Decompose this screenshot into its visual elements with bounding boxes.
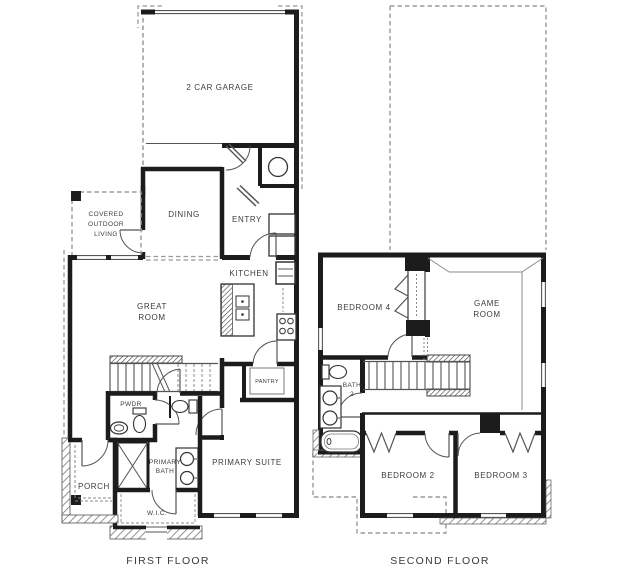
pwdr-toilet-tank [133,408,146,414]
game-room-area [428,258,543,410]
tub-drain [327,439,331,445]
porch-column [71,495,81,505]
vanity-sink [323,411,337,425]
svg-text:OUTDOOR: OUTDOOR [88,221,124,228]
room-label-entry: ENTRY [232,215,262,224]
bifold-doors [395,275,408,318]
svg-text:2: 2 [350,391,354,398]
entry-cabinet [269,214,295,234]
stove [277,314,296,340]
stone-veneer [546,480,551,518]
bath-toilet [172,401,188,413]
bifold-doors [505,433,535,452]
porch-door-arc [82,440,108,466]
stairs-first-floor [110,356,218,392]
bedroom3-door-arc [458,433,480,456]
porch-wall-hatch [62,438,70,523]
bifold-doors [366,433,396,452]
room-label-covered-outdoor-living: COVERED [89,211,124,218]
vaulted-ceiling-lines [428,258,543,410]
room-label-bath2: BATH [343,382,361,389]
stone-veneer [440,518,546,524]
garage-below-outline [390,6,546,250]
closet-angled-door [237,186,259,207]
stair-rail-hatch [110,356,182,363]
primary-bath-area [117,396,200,516]
bath2-toilet-tank [322,365,329,379]
porch-wall-hatch [62,515,118,523]
room-label-bedroom4: BEDROOM 4 [337,303,390,312]
floorplan-page: 2 CAR GARAGE COVERED OUTDOOR LIVING DINI… [0,0,617,582]
bath2-toilet [330,366,347,379]
entry-area [222,144,297,258]
vanity-sink [181,472,194,485]
pwdr-toilet [134,416,146,433]
second-floor-plan: BEDROOM 4 GAME ROOM BATH 2 BEDROOM 2 BED… [313,6,551,567]
room-label-primary-suite: PRIMARY SUITE [212,458,282,467]
stair-break-line [152,363,170,392]
first-floor-title: FIRST FLOOR [126,555,210,567]
oven-cabinet [276,262,295,284]
floorplan-canvas: 2 CAR GARAGE COVERED OUTDOOR LIVING DINI… [0,0,617,582]
porch-area [62,438,118,523]
patio-column [71,191,81,201]
room-label-great-room: GREAT [137,302,167,311]
room-label-kitchen: KITCHEN [229,269,268,278]
entry-cabinet [269,236,295,256]
svg-text:ROOM: ROOM [473,310,500,319]
water-heater [269,158,288,177]
room-label-pantry: PANTRY [255,379,279,385]
hall-pwdr-walls [108,358,224,442]
vanity-sink [181,453,194,466]
room-label-wic: W.I.C. [147,510,167,517]
room-label-pwdr: PWDR [120,401,141,408]
primary-suite-walls [198,512,298,519]
room-label-garage: 2 CAR GARAGE [186,83,253,92]
first-floor-plan: 2 CAR GARAGE COVERED OUTDOOR LIVING DINI… [62,6,302,567]
roof-below-outline [313,453,446,533]
bath2-area [320,356,363,455]
bath-toilet-tank [189,400,197,413]
room-label-dining: DINING [168,210,200,219]
great-room-walls [68,254,143,440]
island-bar-hatch [222,285,233,336]
dining-door-arc [120,230,143,253]
svg-text:BATH: BATH [156,468,174,475]
room-label-primary-bath: PRIMARY [149,459,182,466]
bedroom2-door-arc [425,433,449,457]
svg-text:ROOM: ROOM [138,313,165,322]
stairs-second-floor [363,338,470,396]
wic-shelving [121,494,195,523]
room-label-bedroom3: BEDROOM 3 [474,471,527,480]
room-label-bedroom2: BEDROOM 2 [381,471,434,480]
closet-wall-block [480,413,500,433]
bedroom4-door-arc [388,334,412,357]
room-label-game-room: GAME [474,299,500,308]
second-floor-title: SECOND FLOOR [390,555,490,567]
vanity-sink [323,391,337,405]
pantry-door-arc [253,341,277,364]
svg-text:LIVING: LIVING [94,231,118,238]
room-label-porch: PORCH [78,482,110,491]
second-floor-interior-walls [362,413,546,518]
